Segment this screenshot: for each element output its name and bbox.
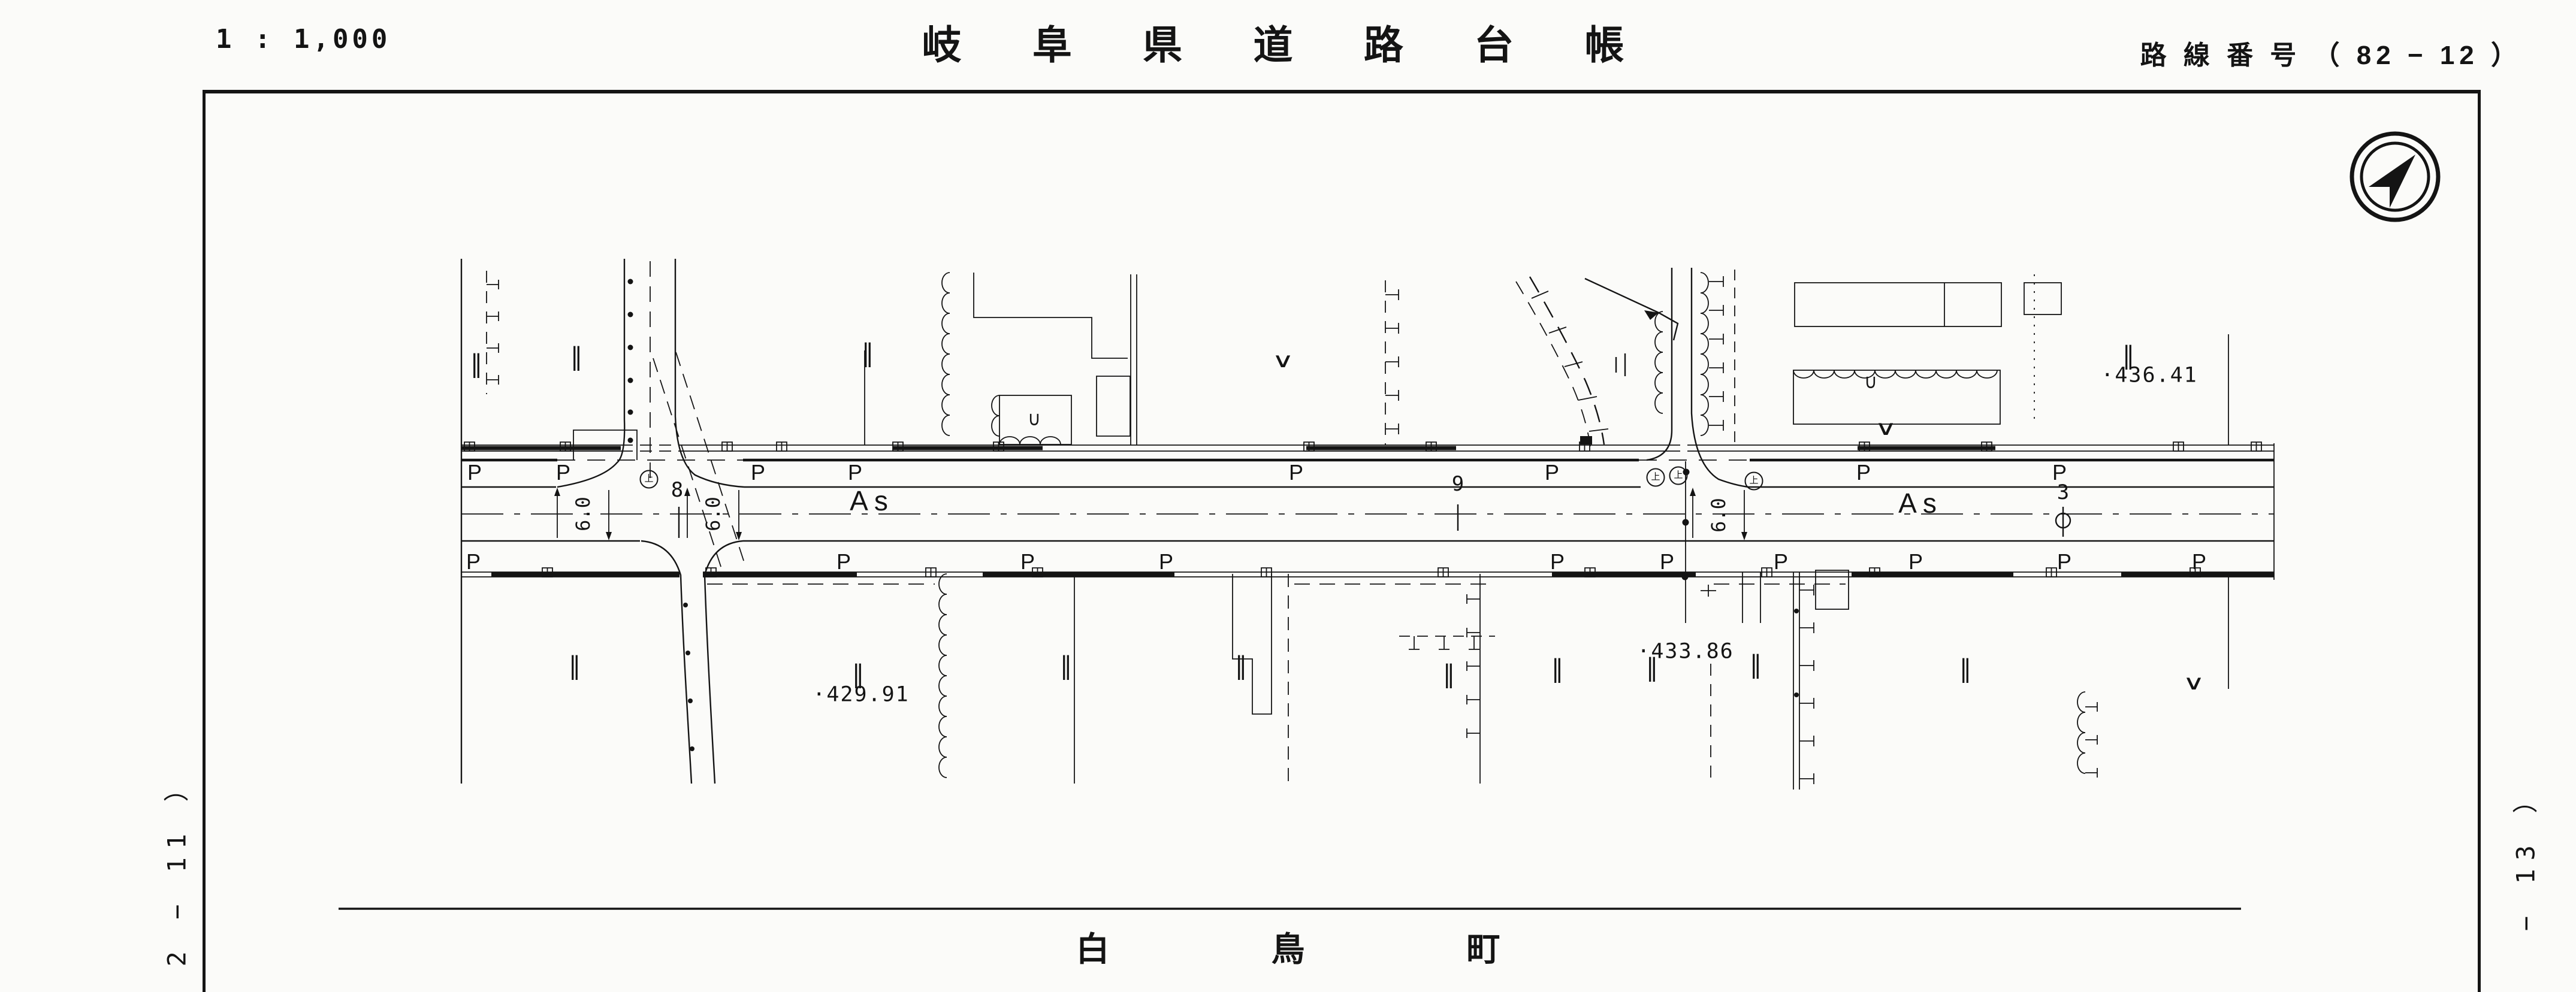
check-mark: ∨ [1874,418,1896,438]
p-label: P [1159,551,1173,573]
field-mark: ∥ [1551,657,1564,682]
manhole-mark: 上 [1745,472,1763,491]
p-label: P [466,551,481,573]
station-number: 8 [671,480,683,500]
place-name: 白鳥町 [0,923,2576,971]
field-mark: ∥ [1060,654,1073,679]
p-label: P [556,462,570,483]
field-mark: ∥ [1750,652,1762,678]
width-label: 6.0 [573,497,593,531]
field-mark: ∥ [1443,662,1455,687]
p-label: P [1020,551,1035,573]
field-mark: ∥ [1235,654,1248,679]
p-label: P [1774,551,1788,573]
p-label: P [1660,551,1674,573]
p-label: P [467,462,482,483]
width-label: 6.0 [1709,498,1728,533]
p-label: P [1908,551,1923,573]
curve-mark: ∪ [1864,373,1877,392]
manhole-mark: 上 [1647,468,1665,487]
p-label: P [1856,462,1871,483]
p-label: P [1289,462,1303,483]
field-mark: ∥ [2122,343,2135,368]
p-label: P [751,462,765,483]
p-label: P [2192,551,2206,573]
field-mark: ∥ [852,662,865,687]
elevation-label: ·436.41 [2101,365,2198,386]
field-mark: ∥ [862,341,874,366]
manhole-mark: 上 [1669,467,1688,485]
curve-mark: ∪ [1028,410,1041,430]
p-label: P [836,551,851,573]
field-mark: ∥ [1959,657,1972,682]
p-label: P [2057,551,2071,573]
p-label: P [1550,551,1565,573]
station-number: 3 [2057,482,2069,503]
check-mark: ∨ [1272,350,1294,371]
station-number: 9 [1452,474,1464,494]
manhole-mark: 上 [640,470,659,489]
field-mark: ∥ [570,344,583,370]
map-annotations: PPPPPPPPPPPPPPPPPPAsAs8936.06.06.0·436.4… [0,0,2576,942]
field-mark: ∥ [569,654,581,679]
check-mark: ∨ [2182,673,2204,693]
p-label: P [848,462,862,483]
field-mark: ∥ [470,352,483,377]
width-label: 6.0 [703,497,723,531]
p-label: P [1545,462,1559,483]
surface-label: As [1898,489,1943,517]
field-mark: ∥ [1646,655,1659,681]
surface-label: As [850,487,894,515]
